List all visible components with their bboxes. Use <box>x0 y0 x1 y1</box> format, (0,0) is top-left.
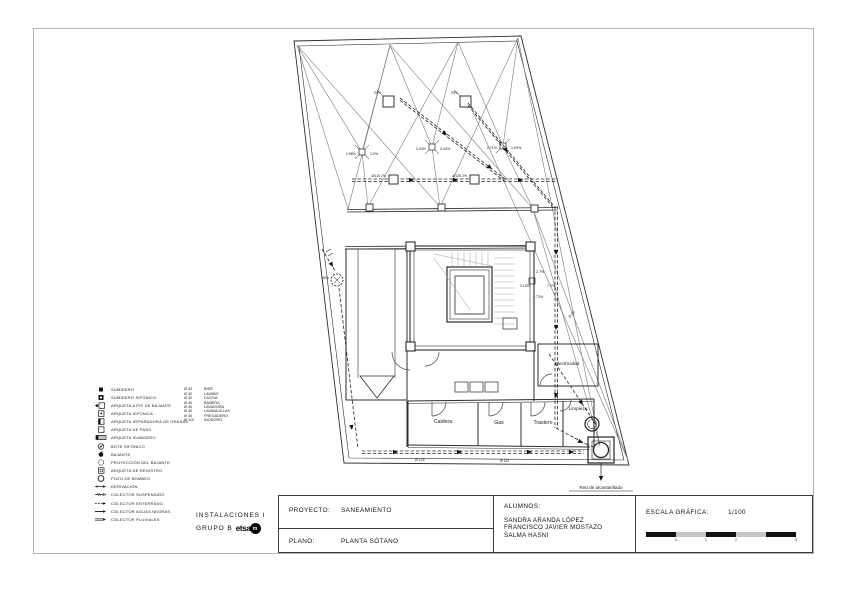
diameter-fixture: BIDÉ <box>204 387 213 391</box>
branding: INSTALACIONES I GRUPO B etsa m <box>196 512 278 534</box>
titleblock-students-cell: ALUMNOS: SANDRA ARANDA LÓPEZ FRANCISCO J… <box>493 495 636 553</box>
diameter-fixture: LAVADORA <box>204 405 224 409</box>
diameter-fixture: LAVABO <box>204 392 219 396</box>
bote-sifonico-icon <box>95 443 108 450</box>
svg-text:Ø 125: Ø 125 <box>415 458 425 462</box>
legend-item: ARQUETA SUMIDERO <box>95 434 200 442</box>
arqueta-registro-icon <box>95 467 108 474</box>
diameter-size: Ø 40 <box>184 414 199 418</box>
ramp-arrow-icon <box>360 376 394 398</box>
svg-text:AR1: AR1 <box>322 276 329 280</box>
scale-segment <box>646 532 676 537</box>
diameter-fixture: DUCHA <box>204 396 218 400</box>
arqueta-separadora-icon <box>95 418 108 425</box>
student-names: SANDRA ARANDA LÓPEZ FRANCISCO JAVIER MOS… <box>504 517 602 539</box>
diameter-size: Ø 40 <box>184 405 199 409</box>
colector-pluviales-icon <box>95 516 108 523</box>
plano-value: PLANTA SÓTANO <box>341 538 399 545</box>
graphic-scale-bar <box>646 532 796 537</box>
pump-pit <box>585 417 614 463</box>
stair-treads <box>434 252 515 324</box>
svg-text:2.98%: 2.98% <box>346 152 357 156</box>
pozo-bombeo-icon <box>95 475 108 482</box>
legend-item: BAJANTE <box>95 450 200 458</box>
legend-label: ARQUETA DE REGISTRO <box>111 468 162 473</box>
diameter-row: Ø 110INODORO <box>184 418 254 422</box>
legend-label: ARQUETA SEPARADORA DE GRASAS <box>111 419 188 424</box>
room-label: Caldera <box>434 419 452 425</box>
diameter-size: Ø 32 <box>184 392 199 396</box>
titleblock-project-cell: PROYECTO: SANEAMIENTO PLANO: PLANTA SÓTA… <box>278 495 494 553</box>
svg-text:Ø 90: Ø 90 <box>568 310 576 318</box>
legend-label: COLECTOR PLUVIALES <box>111 517 160 522</box>
arqueta-paso-icon <box>95 426 108 433</box>
scale-segment <box>736 532 766 537</box>
node-labels: BP1 BP2 AR1 <box>322 91 458 280</box>
arqueta-sumidero-icon <box>95 434 108 441</box>
colector-aguas-negras-icon <box>95 508 108 515</box>
proyeccion-bajante-icon <box>95 459 108 466</box>
sumidero-sifonico-icon <box>95 394 108 401</box>
legend-label: BOTE SIFÓNICO <box>111 444 145 449</box>
svg-text:Ø110 2%: Ø110 2% <box>372 174 386 178</box>
svg-text:2.0%: 2.0% <box>370 152 379 156</box>
legend-label: COLECTOR ENTERRADO <box>111 501 163 506</box>
legend-label: ARQUETA SIFÓNICA <box>111 411 153 416</box>
arqueta-sifonica-icon <box>95 410 108 417</box>
garage-ramp <box>346 249 407 447</box>
legend-label: COLECTOR AGUAS NEGRAS <box>111 509 170 514</box>
svg-text:7.2%: 7.2% <box>547 284 556 288</box>
legend-label: BAJANTE <box>111 452 130 457</box>
legend-item: COLECTOR SUSPENDIDO <box>95 491 200 499</box>
room-label: Limpieza <box>569 406 588 411</box>
elevator-shaft <box>447 267 492 322</box>
scale-tick: 1 <box>705 538 707 542</box>
colector-enterrado-icon <box>95 500 108 507</box>
svg-text:2.7%: 2.7% <box>536 270 545 274</box>
legend-label: PROYECCIÓN DEL BAJANTE <box>111 460 170 465</box>
legend-label: SUMIDERO <box>111 387 134 392</box>
scale-segment <box>706 532 736 537</box>
collector-arquetas <box>331 175 479 286</box>
svg-text:3.44%: 3.44% <box>416 147 427 151</box>
diameter-size: Ø 40 <box>184 396 199 400</box>
door-arcs <box>392 352 571 416</box>
legend-label: DERIVACIÓN <box>111 484 138 489</box>
escala-value: 1/100 <box>728 509 746 516</box>
diameter-fixture: LAVAVAJILLAS <box>204 409 230 413</box>
svg-text:1.73%: 1.73% <box>533 295 544 299</box>
proyecto-value: SANEAMIENTO <box>341 507 392 514</box>
alumnos-label: ALUMNOS: <box>504 503 541 510</box>
terrace-wall <box>347 204 557 212</box>
legend-item: COLECTOR ENTERRADO <box>95 499 200 507</box>
derivacion-icon <box>95 483 108 490</box>
escala-label: ESCALA GRÁFICA: <box>646 509 709 516</box>
sewer-label: Red de alcantarillado <box>579 485 623 490</box>
student-name: SALMA HASNI <box>504 532 602 539</box>
diameter-legend: Ø 32BIDÉ Ø 32LAVABO Ø 40DUCHA Ø 40BAÑERA… <box>184 387 254 423</box>
diameter-size: Ø 40 <box>184 401 199 405</box>
legend-item: ARQUETA DE REGISTRO <box>95 466 200 474</box>
legend-item: COLECTOR PLUVIALES <box>95 515 200 523</box>
scale-segment <box>766 532 796 537</box>
room-label: Trastero <box>533 420 552 426</box>
diameter-fixture: INODORO <box>204 418 222 422</box>
scale-tick: 2 <box>735 538 737 542</box>
room-label: Gas <box>494 420 504 426</box>
legend-label: SUMIDERO SIFÓNICO <box>111 395 156 400</box>
svg-text:BP1: BP1 <box>374 91 381 95</box>
plano-label: PLANO: <box>289 538 315 545</box>
etsam-logo-badge-icon: m <box>250 523 261 534</box>
arqueta-pie-bajante-icon <box>95 402 108 409</box>
legend-item: PROYECCIÓN DEL BAJANTE <box>95 458 200 466</box>
svg-text:2.71%: 2.71% <box>487 146 498 150</box>
svg-text:BP2: BP2 <box>451 91 458 95</box>
group-label: GRUPO B <box>196 525 233 532</box>
legend-item: ARQUETA DE PASO <box>95 426 200 434</box>
diameter-size: Ø 110 <box>184 418 199 422</box>
slope-labels: 2.98% 2.0% 3.44% 3.44% 2.71% 1.09% 2.7% … <box>346 146 556 299</box>
svg-text:Ø 110: Ø 110 <box>500 459 509 463</box>
legend-label: ARQUETA DE PASO <box>111 427 151 432</box>
legend-label: ARQUETA SUMIDERO <box>111 435 156 440</box>
legend-label: POZO DE BOMBEO <box>111 476 150 481</box>
sumidero-icon <box>95 386 108 393</box>
flow-arrows <box>329 130 604 481</box>
scale-tick: 0 <box>675 538 677 542</box>
stair-core <box>406 242 535 401</box>
etsam-logo-text: etsa <box>236 524 251 533</box>
legend-item: BOTE SIFÓNICO <box>95 442 200 450</box>
proyecto-label: PROYECTO: <box>289 507 330 514</box>
legend-item: DERIVACIÓN <box>95 483 200 491</box>
diameter-fixture: BAÑERA <box>204 401 220 405</box>
colector-suspendido-icon <box>95 491 108 498</box>
drawing-sheet: Caldera Gas Trastero Limpieza Electricid… <box>0 0 848 600</box>
student-name: SANDRA ARANDA LÓPEZ <box>504 517 602 524</box>
room-label: Electricidad <box>555 361 580 367</box>
legend-label: COLECTOR SUSPENDIDO <box>111 492 165 497</box>
student-name: FRANCISCO JAVIER MOSTAZO <box>504 524 602 531</box>
bajante-icon <box>95 451 108 458</box>
diameter-size: Ø 40 <box>184 409 199 413</box>
room-labels: Caldera Gas Trastero Limpieza Electricid… <box>434 361 588 426</box>
diameter-fixture: FREGADERO <box>204 414 228 418</box>
svg-text:3.44%: 3.44% <box>440 147 451 151</box>
svg-text:1.09%: 1.09% <box>511 146 522 150</box>
etsam-logo: etsa m <box>236 523 261 534</box>
legend-label: ARQUETA A PIE DE BAJANTE <box>111 403 171 408</box>
diameter-size: Ø 32 <box>184 387 199 391</box>
legend-item: COLECTOR AGUAS NEGRAS <box>95 507 200 515</box>
svg-text:Ø125 2%: Ø125 2% <box>452 174 467 178</box>
svg-text:3.10%: 3.10% <box>520 284 531 288</box>
course-title: INSTALACIONES I <box>196 512 278 519</box>
scale-tick: 5 <box>795 538 797 542</box>
titleblock-scale-cell: ESCALA GRÁFICA: 1/100 0 1 2 5 <box>635 495 813 553</box>
legend-item: POZO DE BOMBEO <box>95 475 200 483</box>
titleblock-divider <box>279 528 493 529</box>
scale-segment <box>676 532 706 537</box>
